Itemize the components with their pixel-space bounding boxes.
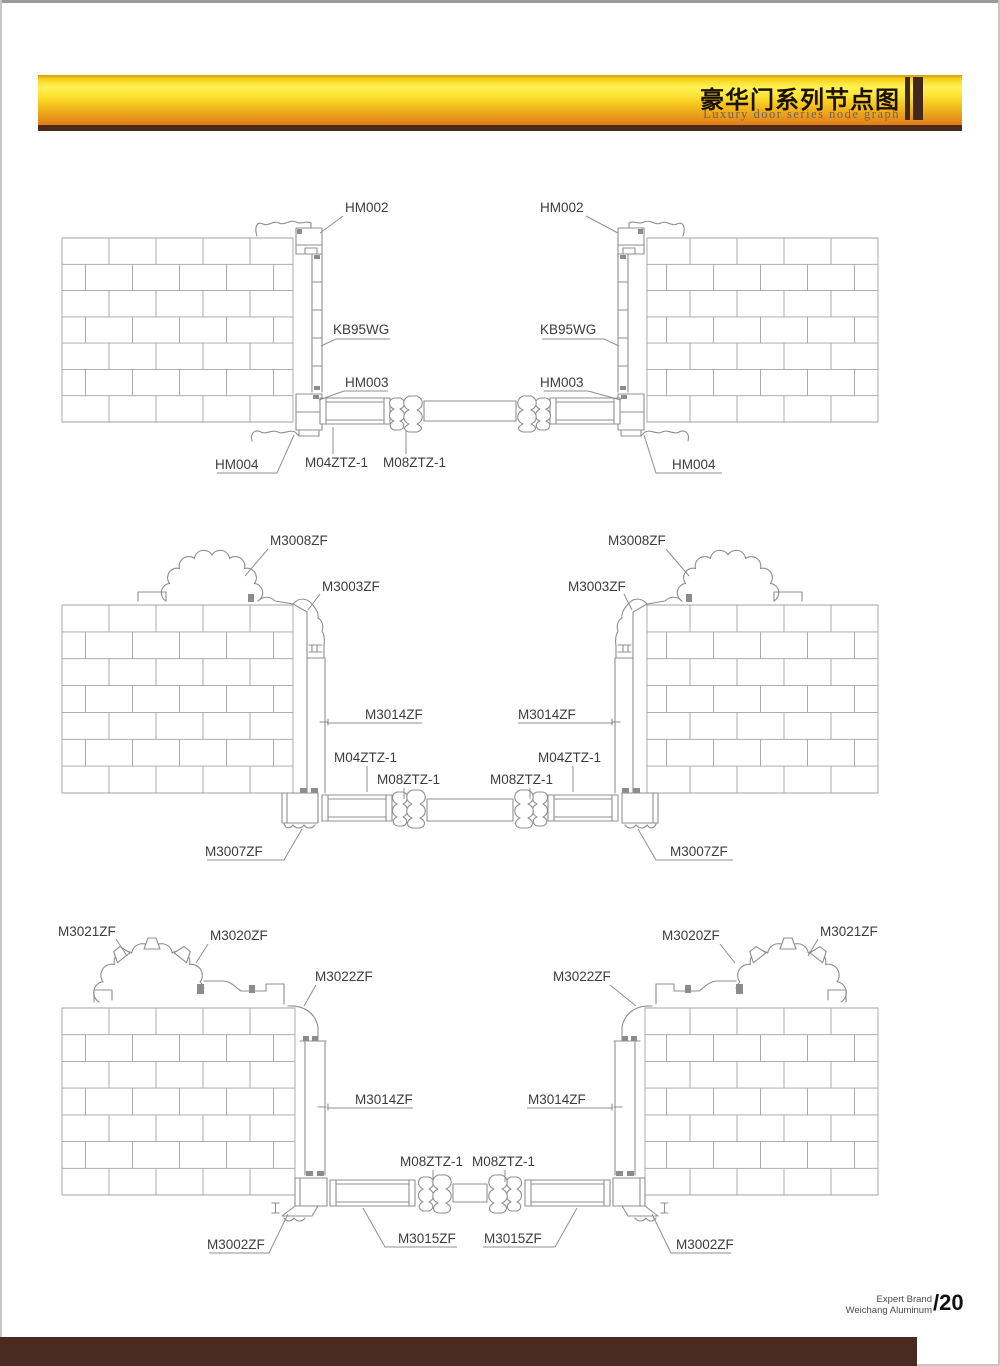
- arch-tail-curve: [258, 597, 293, 604]
- gasket-clip: [312, 1036, 318, 1041]
- part-label-m3020zf: M3020ZF: [210, 928, 268, 943]
- leader-line-kb95wg: [321, 339, 390, 346]
- brick-joints: [62, 238, 293, 422]
- gasket-clip: [300, 788, 307, 793]
- part-label-m3003zf: M3003ZF: [568, 579, 626, 594]
- part-label-hm004: HM004: [215, 457, 259, 472]
- part-label-kb95wg: KB95WG: [540, 322, 596, 337]
- part-label-kb95wg: KB95WG: [333, 322, 389, 337]
- crown-tail-curve: [200, 981, 266, 991]
- jamb-profile: [305, 1042, 328, 1175]
- header-underline: [38, 125, 962, 131]
- jamb-strip: [312, 254, 322, 392]
- sill-bead-ornament: [433, 1175, 452, 1213]
- part-label-m04ztz-1: M04ZTZ-1: [305, 455, 368, 470]
- sill-center-bar: [427, 799, 470, 821]
- page-top-edge: [0, 0, 1000, 3]
- footer-brand-line1: Expert Brand: [846, 1294, 932, 1305]
- diagram3-right-half-mirror: [470, 938, 878, 1221]
- part-label-m08ztz-1: M08ZTZ-1: [490, 772, 553, 787]
- scalloped-arch: [161, 550, 262, 601]
- part-label-m3022zf: M3022ZF: [315, 969, 373, 984]
- catalog-page: 豪华门系列节点图 Luxury door series node graph H…: [0, 0, 1000, 1366]
- part-label-m3007zf: M3007ZF: [205, 844, 263, 859]
- arch-clip: [248, 594, 254, 602]
- part-label-m3008zf: M3008ZF: [608, 533, 666, 548]
- leader-line-m3020zf: [196, 944, 208, 963]
- part-label-m3020zf: M3020ZF: [662, 928, 720, 943]
- part-label-m3014zf: M3014ZF: [365, 707, 423, 722]
- break-line-wavy: [284, 824, 315, 828]
- part-label-m08ztz-1: M08ZTZ-1: [383, 455, 446, 470]
- part-label-hm003: HM003: [345, 375, 389, 390]
- part-label-m3002zf: M3002ZF: [676, 1237, 734, 1252]
- brick-joints: [62, 1008, 295, 1195]
- part-label-m04ztz-1: M04ZTZ-1: [334, 750, 397, 765]
- part-label-m3021zf: M3021ZF: [820, 924, 878, 939]
- part-label-m3014zf: M3014ZF: [518, 707, 576, 722]
- part-label-hm002: HM002: [540, 200, 584, 215]
- gasket-clip: [314, 386, 320, 390]
- sill-bead-ornament: [393, 792, 408, 826]
- leader-line-hm002: [586, 216, 618, 233]
- part-label-m08ztz-1: M08ZTZ-1: [400, 1154, 463, 1169]
- crown-keystone: [111, 944, 130, 963]
- frame-head-curved-profile: [293, 599, 324, 658]
- leader-line-hm002: [320, 216, 343, 233]
- part-label-m3002zf: M3002ZF: [207, 1237, 265, 1252]
- gasket-clip: [317, 1171, 324, 1176]
- brick-wall: [62, 605, 293, 793]
- leader-line-m3008zf: [666, 549, 689, 576]
- sill-center-bar: [424, 401, 470, 421]
- part-label-m3015zf: M3015ZF: [398, 1231, 456, 1246]
- page-number: /20: [933, 1290, 964, 1316]
- gasket-clip: [303, 1036, 309, 1041]
- part-label-m3021zf: M3021ZF: [58, 924, 116, 939]
- sill-bead-ornament: [419, 1177, 434, 1211]
- anchor-hook: [272, 1203, 279, 1213]
- break-line-wavy: [284, 1218, 305, 1221]
- part-label-m3014zf: M3014ZF: [355, 1092, 413, 1107]
- gasket-clip: [311, 788, 318, 793]
- part-label-m04ztz-1: M04ZTZ-1: [538, 750, 601, 765]
- diagram-node-arch-frame: M3008ZFM3008ZFM3003ZFM3003ZFM3014ZFM3014…: [0, 520, 1000, 880]
- crown-clip: [249, 985, 255, 993]
- diagram-node-flat-frame: HM002HM002KB95WGKB95WGHM003HM003HM004HM0…: [0, 190, 1000, 490]
- sill-bead-ornament: [390, 398, 405, 430]
- header-accent-bar-thin: [905, 77, 910, 120]
- part-label-m08ztz-1: M08ZTZ-1: [377, 772, 440, 787]
- crown-keystone: [174, 944, 193, 963]
- part-label-m3008zf: M3008ZF: [270, 533, 328, 548]
- diagram-node-crown-frame: M3021ZFM3021ZFM3020ZFM3020ZFM3022ZFM3022…: [0, 900, 1000, 1270]
- footer-brand-text: Expert Brand Weichang Aluminum: [846, 1294, 932, 1316]
- footer-brand-line2: Weichang Aluminum: [846, 1305, 932, 1316]
- brick-wall: [62, 238, 293, 422]
- sill-center-bar: [453, 1184, 470, 1202]
- leader-line-m3020zf: [720, 944, 735, 963]
- sill-bead-ornament: [404, 396, 423, 432]
- diagram3-left-half: [62, 938, 470, 1221]
- sill-bead-ornament: [407, 790, 426, 828]
- part-label-m3022zf: M3022ZF: [553, 969, 611, 984]
- brick-joints: [62, 605, 293, 793]
- footer-brown-bar: [0, 1337, 917, 1366]
- gasket-clip: [306, 1171, 313, 1176]
- gasket-clip: [314, 255, 320, 259]
- diagram1-right-half-mirror: [470, 221, 878, 441]
- page-subtitle-english: Luxury door series node graph: [703, 107, 900, 122]
- leader-line-m3022zf: [610, 985, 636, 1006]
- frame-head-quarter-arc: [288, 1006, 326, 1041]
- brick-wall: [62, 1008, 295, 1195]
- leader-line-m3008zf: [245, 549, 268, 576]
- part-label-hm003: HM003: [540, 375, 584, 390]
- part-label-m3007zf: M3007ZF: [670, 844, 728, 859]
- part-label-m3014zf: M3014ZF: [528, 1092, 586, 1107]
- part-label-hm002: HM002: [345, 200, 389, 215]
- gasket-clip: [297, 229, 302, 234]
- part-label-hm004: HM004: [672, 457, 716, 472]
- part-label-m3003zf: M3003ZF: [322, 579, 380, 594]
- part-label-m3015zf: M3015ZF: [484, 1231, 542, 1246]
- crown-keystone: [144, 938, 160, 949]
- gasket-clip: [313, 395, 319, 399]
- leader-line-m3022zf: [304, 985, 316, 1006]
- diagram1-left-half: [62, 221, 470, 441]
- part-label-m08ztz-1: M08ZTZ-1: [472, 1154, 535, 1169]
- header-accent-bar-thick: [913, 77, 923, 120]
- jamb-profile: [307, 658, 328, 793]
- crown-end-step: [266, 984, 284, 1004]
- leader-line-kb95wg: [542, 339, 619, 346]
